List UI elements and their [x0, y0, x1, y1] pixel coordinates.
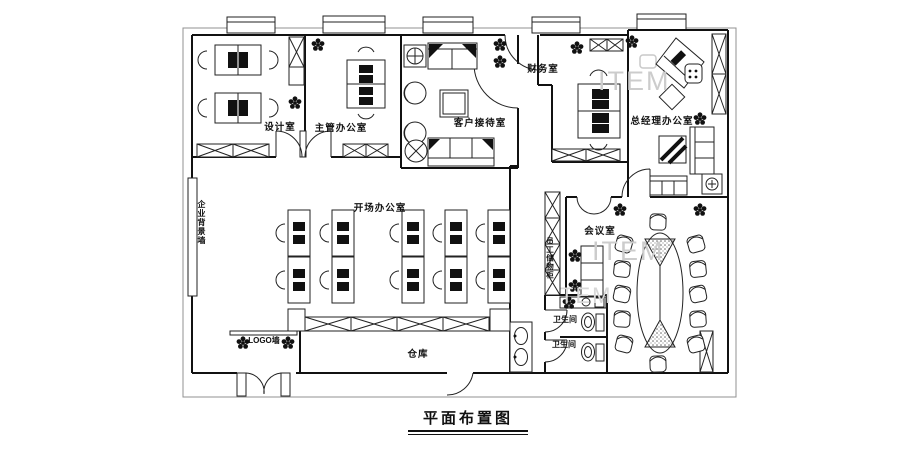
label-finance-room: 财务室	[513, 65, 573, 75]
open-office-workstations	[276, 210, 510, 303]
plant-icon	[614, 203, 627, 215]
watermark: ITEM	[592, 238, 665, 265]
label-toilet-upper: 卫生间	[545, 316, 585, 324]
background-wall	[188, 178, 197, 296]
floor-plan-page: ITEM ITEM TEM 设计室 主管办公室 客户接待室 财务室 总经理办公室…	[0, 0, 900, 450]
label-staff-cabinet: 员工储物柜	[546, 237, 554, 312]
window-bays	[227, 14, 686, 33]
sink-counter	[510, 322, 532, 372]
design-room-furniture	[198, 45, 278, 123]
plant-icon	[494, 38, 507, 50]
round-chair	[404, 82, 426, 104]
drawing-title: 平面布置图	[398, 407, 538, 428]
floor-plan-drawing	[0, 0, 900, 450]
label-open-office: 开场办公室	[340, 204, 420, 214]
watermark: ITEM	[598, 68, 671, 95]
reception-room-furniture	[404, 43, 494, 166]
supervisor-office-furniture	[347, 47, 385, 119]
label-reception-room: 客户接待室	[440, 119, 520, 129]
label-logo-wall: LOGO墙	[234, 337, 294, 345]
bathroom-fixtures	[510, 297, 606, 372]
plant-icon	[569, 249, 582, 261]
watermark: TEM	[560, 285, 612, 307]
door-jamb	[281, 373, 290, 396]
plant-icon	[571, 41, 584, 53]
logo-wall	[230, 331, 297, 335]
plant-icon	[312, 38, 325, 50]
plant-icon	[289, 96, 302, 108]
label-supervisor-office: 主管办公室	[301, 124, 381, 134]
plant-icon	[494, 55, 507, 67]
plant-icon	[694, 203, 707, 215]
label-warehouse: 仓库	[388, 350, 448, 360]
label-background-wall: 企业背景墙	[197, 200, 205, 285]
label-toilet-lower: 卫生间	[544, 341, 584, 349]
label-meeting-room: 会议室	[570, 227, 630, 237]
label-gm-office: 总经理办公室	[617, 117, 707, 127]
door-jamb	[237, 373, 246, 396]
